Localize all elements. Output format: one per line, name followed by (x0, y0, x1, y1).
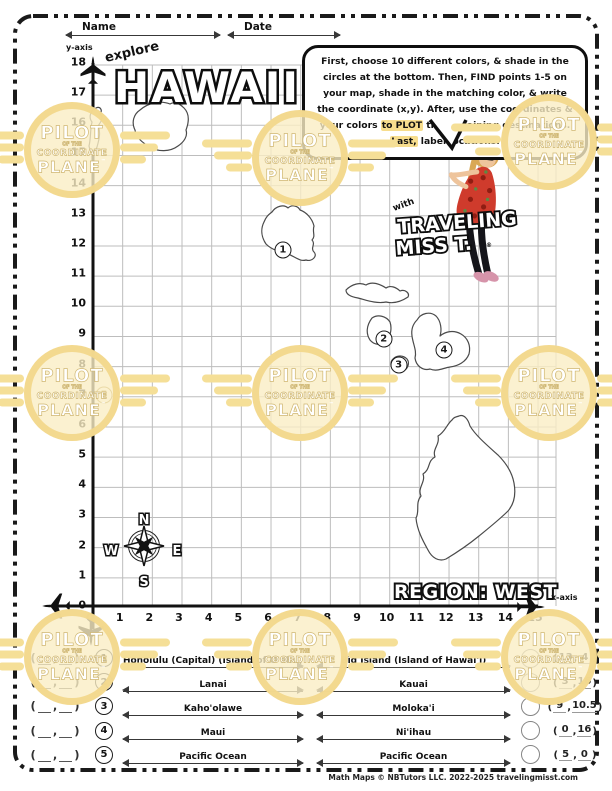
destination-name: Pacific Ocean (380, 752, 448, 762)
y-tick: 14 (56, 176, 86, 189)
x-tick: 14 (498, 611, 513, 624)
y-tick: 17 (56, 86, 86, 99)
color-circle[interactable] (521, 745, 540, 764)
with-label: with (392, 197, 416, 214)
x-tick: 10 (379, 611, 394, 624)
y-value: 16 (577, 676, 591, 689)
destination-name: Ni'ihau (396, 728, 431, 738)
answer-row-left: (,)4Maui (18, 719, 310, 743)
coordinate-blank[interactable]: (,) (18, 651, 92, 665)
y-tick: 10 (56, 297, 86, 310)
coordinate-blank[interactable]: (,) (18, 724, 92, 738)
point-number-circle[interactable]: 5 (95, 746, 113, 764)
x-axis-label: x-axis (551, 593, 578, 602)
destination-line (317, 667, 510, 668)
y-tick: 4 (56, 478, 86, 491)
coordinate-answer[interactable]: (5,0) (544, 749, 606, 762)
x-tick: 11 (409, 611, 424, 624)
x-tick: 8 (324, 611, 332, 624)
x-value: 13 (559, 652, 573, 665)
destination-name: Pacific Ocean (179, 752, 247, 762)
map-point-1[interactable]: 1 (274, 242, 291, 259)
destination: Pacific Ocean (116, 740, 310, 769)
footer-credit: Math Maps © NBTutors LLC. 2022-2025 trav… (328, 773, 578, 782)
y-tick: 5 (56, 448, 86, 461)
y-tick: 2 (56, 538, 86, 551)
coordinate-blank[interactable]: (,) (18, 699, 92, 713)
island-big-island (416, 416, 515, 560)
destination-name: Lanai (199, 680, 226, 690)
destination-name: Kaho'olawe (184, 704, 242, 714)
destination-name: Kauai (399, 680, 428, 690)
worksheet-page: Name Date (0, 0, 612, 791)
compass-rose: N S E W (104, 513, 182, 590)
destination-line (123, 691, 303, 692)
destination-line (317, 691, 510, 692)
y-tick: 3 (56, 508, 86, 521)
destination-line (317, 739, 510, 740)
destination-name: Big Island (Island of Hawai'i) (341, 656, 487, 666)
map-point-4[interactable]: 4 (435, 342, 452, 359)
compass-e: E (173, 544, 182, 559)
coordinate-blank[interactable]: (,) (18, 748, 92, 762)
answer-row-left: (,)5Pacific Ocean (18, 743, 310, 767)
compass-w: W (104, 544, 118, 559)
destination-line (317, 715, 510, 716)
explore-label: explore (104, 39, 161, 66)
page-title: HAWAII (114, 63, 300, 112)
answer-row-left: (,)1Honolulu (Capital) (Island of O'ahu) (18, 646, 310, 670)
destination-line (123, 667, 303, 668)
map-point-2[interactable]: 2 (375, 331, 392, 348)
x-tick: 6 (264, 611, 272, 624)
destination-line (317, 763, 510, 764)
x-tick: 7 (294, 611, 302, 624)
y-tick: 0 (56, 599, 86, 612)
x-value: 5 (559, 749, 572, 762)
answer-row-left: (,)3Kaho'olawe (18, 694, 310, 718)
coordinate-answer[interactable]: (9,10.5) (544, 700, 606, 713)
y-tick: 7 (56, 387, 86, 400)
y-value: 4 (578, 652, 591, 665)
answer-row-right: Ni'ihau(0,16) (310, 719, 606, 743)
point-number-circle[interactable]: 1 (95, 649, 113, 667)
y-tick: 18 (56, 55, 86, 68)
x-tick: 1 (116, 611, 124, 624)
answer-row-right: Pacific Ocean(5,0) (310, 743, 606, 767)
destination-line (123, 739, 303, 740)
character-name-line2: MISS T. (395, 233, 473, 260)
point-number-circle[interactable]: 3 (95, 697, 113, 715)
y-tick: 8 (56, 357, 86, 370)
compass-n: N (139, 513, 150, 528)
x-tick: 0 (86, 611, 94, 624)
x-value: 0 (559, 724, 572, 737)
y-value: 16 (577, 724, 591, 737)
color-circle[interactable] (521, 697, 540, 716)
y-tick: 12 (56, 236, 86, 249)
registered-mark: ® (486, 242, 492, 249)
x-tick: 9 (353, 611, 361, 624)
compass-s: S (139, 575, 148, 590)
destination-name: Moloka'i (392, 704, 434, 714)
y-tick: 11 (56, 267, 86, 280)
coordinate-answer[interactable]: (3,16) (544, 676, 606, 689)
point-number-circle[interactable]: 4 (95, 722, 113, 740)
x-tick: 2 (146, 611, 154, 624)
x-tick: 3 (175, 611, 183, 624)
x-value: 3 (559, 676, 572, 689)
color-circle[interactable] (521, 649, 540, 668)
y-tick: 16 (56, 116, 86, 129)
x-value: 9 (553, 700, 566, 713)
coordinate-blank[interactable]: (,) (18, 675, 92, 689)
highlighted-word: Last, (390, 136, 417, 147)
coordinate-answer[interactable]: (0,16) (544, 724, 606, 737)
x-tick: 5 (235, 611, 243, 624)
coordinate-answer[interactable]: (13,4) (544, 652, 606, 665)
destination-name: Maui (201, 728, 226, 738)
character-name-block: with TRAVELING MISS T. ® (390, 195, 540, 270)
y-tick: 1 (56, 568, 86, 581)
y-tick: 15 (56, 146, 86, 159)
answer-row-right: Kauai(3,16) (310, 670, 606, 694)
answer-row-right: Moloka'i(9,10.5) (310, 694, 606, 718)
destination: Pacific Ocean (310, 740, 517, 769)
destination-line (123, 715, 303, 716)
y-tick: 9 (56, 327, 86, 340)
y-tick: 6 (56, 417, 86, 430)
map-point-5[interactable]: 5 (95, 386, 112, 403)
y-axis-label: y-axis (66, 43, 93, 52)
answer-row-right: Big Island (Island of Hawai'i)(13,4) (310, 646, 606, 670)
bubble-tail (420, 118, 490, 158)
island-molokai (346, 283, 408, 303)
x-tick: 4 (205, 611, 213, 624)
answer-list-right: Big Island (Island of Hawai'i)(13,4)Kaua… (310, 646, 606, 767)
y-tick: 13 (56, 206, 86, 219)
color-circle[interactable] (521, 721, 540, 740)
answer-row-left: (,)2Lanai (18, 670, 310, 694)
x-tick: 12 (438, 611, 453, 624)
answer-list-left: (,)1Honolulu (Capital) (Island of O'ahu)… (18, 646, 310, 767)
destination-name: Honolulu (Capital) (Island of O'ahu) (123, 656, 303, 666)
map-point-3[interactable]: 3 (390, 357, 407, 374)
highlighted-word: to PLOT (381, 120, 423, 131)
point-number-circle[interactable]: 2 (95, 673, 113, 691)
color-circle[interactable] (521, 673, 540, 692)
x-tick: 13 (468, 611, 483, 624)
region-label: REGION: WEST (394, 581, 557, 603)
y-value: 10.5 (572, 700, 597, 713)
y-value: 0 (578, 749, 591, 762)
destination-line (123, 763, 303, 764)
x-tick: 15 (527, 611, 542, 624)
